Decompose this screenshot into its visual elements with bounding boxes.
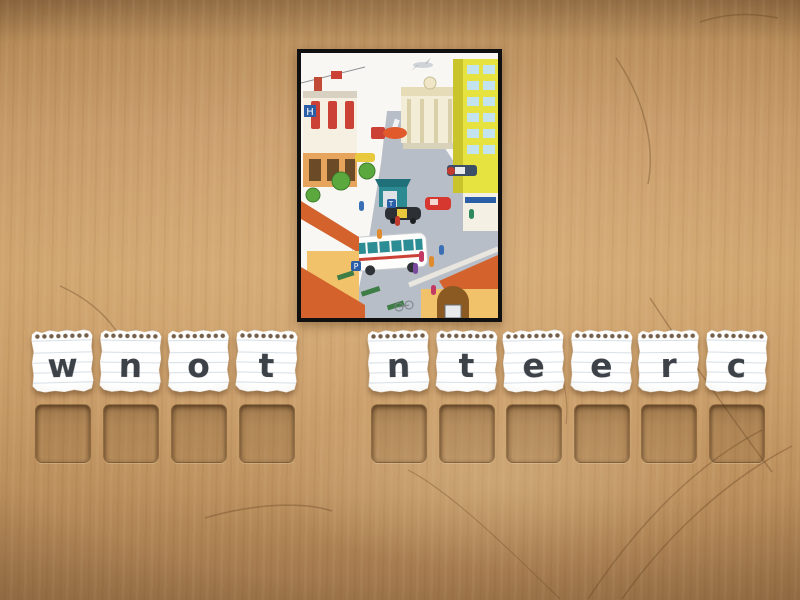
svg-text:T: T bbox=[388, 200, 394, 208]
letter-slot[interactable] bbox=[574, 404, 630, 463]
tile-letter: t bbox=[258, 349, 274, 382]
paper-texture: n bbox=[367, 329, 429, 392]
paper-texture: n bbox=[100, 330, 162, 393]
letter-slot[interactable] bbox=[439, 404, 495, 463]
game-stage: H bbox=[0, 0, 800, 600]
paper-texture: e bbox=[502, 329, 564, 392]
paper-texture: w bbox=[31, 329, 93, 392]
letter-slot[interactable] bbox=[35, 404, 91, 463]
letter-tile[interactable]: w bbox=[31, 329, 93, 392]
letter-tile[interactable]: n bbox=[100, 330, 162, 393]
tile-letter: n bbox=[118, 349, 142, 382]
paper-texture: t bbox=[235, 329, 297, 392]
letter-tile[interactable]: e bbox=[502, 329, 564, 392]
prompt-image-frame: H bbox=[297, 49, 502, 322]
paper-texture: t bbox=[436, 330, 498, 393]
letter-tile[interactable]: t bbox=[235, 329, 297, 392]
tile-letter: c bbox=[726, 349, 746, 382]
tile-letter: r bbox=[660, 349, 677, 382]
town-centre-illustration: H bbox=[301, 53, 498, 318]
svg-text:P: P bbox=[354, 262, 359, 271]
paper-texture: e bbox=[571, 330, 633, 393]
tile-letter: t bbox=[458, 349, 474, 382]
letter-slot[interactable] bbox=[239, 404, 295, 463]
tile-letter: e bbox=[590, 349, 613, 382]
paper-texture: o bbox=[168, 330, 230, 393]
tile-letter: o bbox=[187, 349, 210, 382]
letter-tile[interactable]: r bbox=[638, 330, 700, 393]
tile-letter: w bbox=[47, 349, 78, 383]
tile-letter: n bbox=[387, 349, 411, 382]
letter-slot[interactable] bbox=[103, 404, 159, 463]
paper-texture: r bbox=[638, 330, 700, 393]
letter-tile[interactable]: c bbox=[705, 329, 767, 392]
tile-letter: e bbox=[522, 349, 545, 382]
letter-tile[interactable]: e bbox=[571, 330, 633, 393]
letter-slot[interactable] bbox=[506, 404, 562, 463]
letter-slot[interactable] bbox=[641, 404, 697, 463]
letter-tile[interactable]: t bbox=[436, 330, 498, 393]
letter-slot[interactable] bbox=[709, 404, 765, 463]
letter-slot[interactable] bbox=[171, 404, 227, 463]
paper-texture: c bbox=[705, 329, 767, 392]
letter-tile[interactable]: n bbox=[367, 329, 429, 392]
letter-tile[interactable]: o bbox=[168, 330, 230, 393]
letter-slot[interactable] bbox=[371, 404, 427, 463]
svg-text:H: H bbox=[306, 107, 314, 118]
